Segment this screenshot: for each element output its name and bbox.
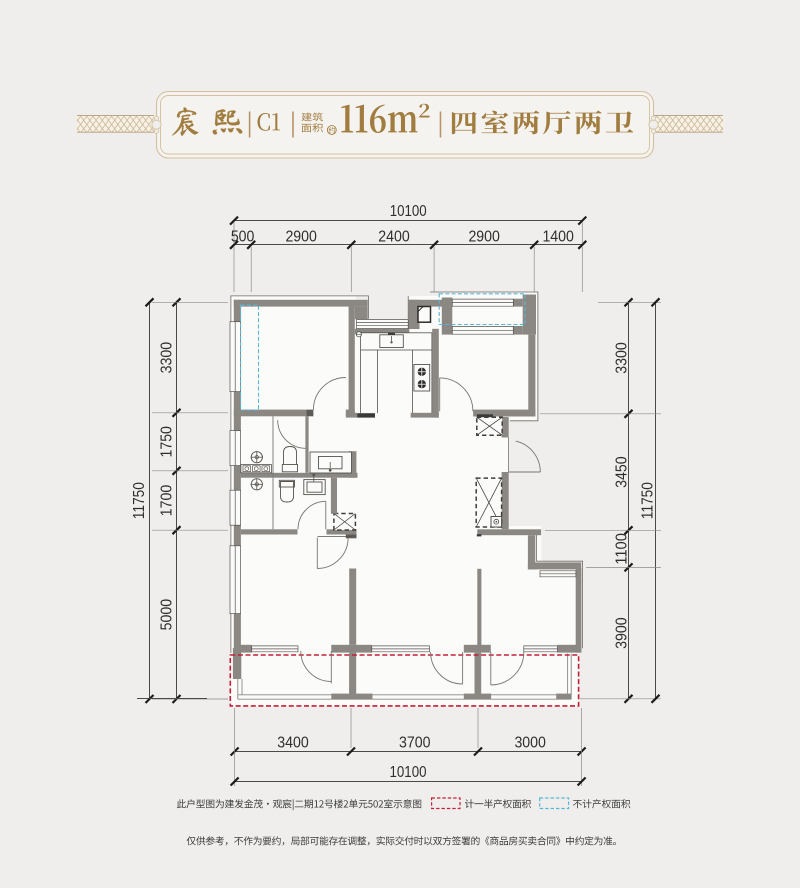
- svg-text:1750: 1750: [159, 426, 176, 458]
- svg-text:3300: 3300: [613, 342, 630, 374]
- svg-text:3400: 3400: [277, 734, 309, 751]
- svg-text:10100: 10100: [390, 203, 427, 220]
- svg-text:11750: 11750: [639, 482, 656, 519]
- svg-text:5000: 5000: [159, 599, 176, 631]
- svg-text:3300: 3300: [159, 342, 176, 374]
- svg-text:3700: 3700: [399, 734, 431, 751]
- svg-text:1400: 1400: [542, 229, 574, 246]
- svg-text:2400: 2400: [378, 229, 410, 246]
- svg-text:3450: 3450: [613, 456, 630, 488]
- svg-text:2900: 2900: [468, 229, 500, 246]
- svg-text:1100: 1100: [613, 533, 630, 565]
- svg-text:2900: 2900: [285, 229, 317, 246]
- svg-text:3000: 3000: [514, 734, 546, 751]
- svg-text:11750: 11750: [131, 482, 148, 519]
- svg-text:10100: 10100: [390, 764, 427, 781]
- svg-text:1700: 1700: [159, 485, 176, 517]
- svg-text:500: 500: [231, 229, 255, 246]
- svg-text:3900: 3900: [613, 617, 630, 649]
